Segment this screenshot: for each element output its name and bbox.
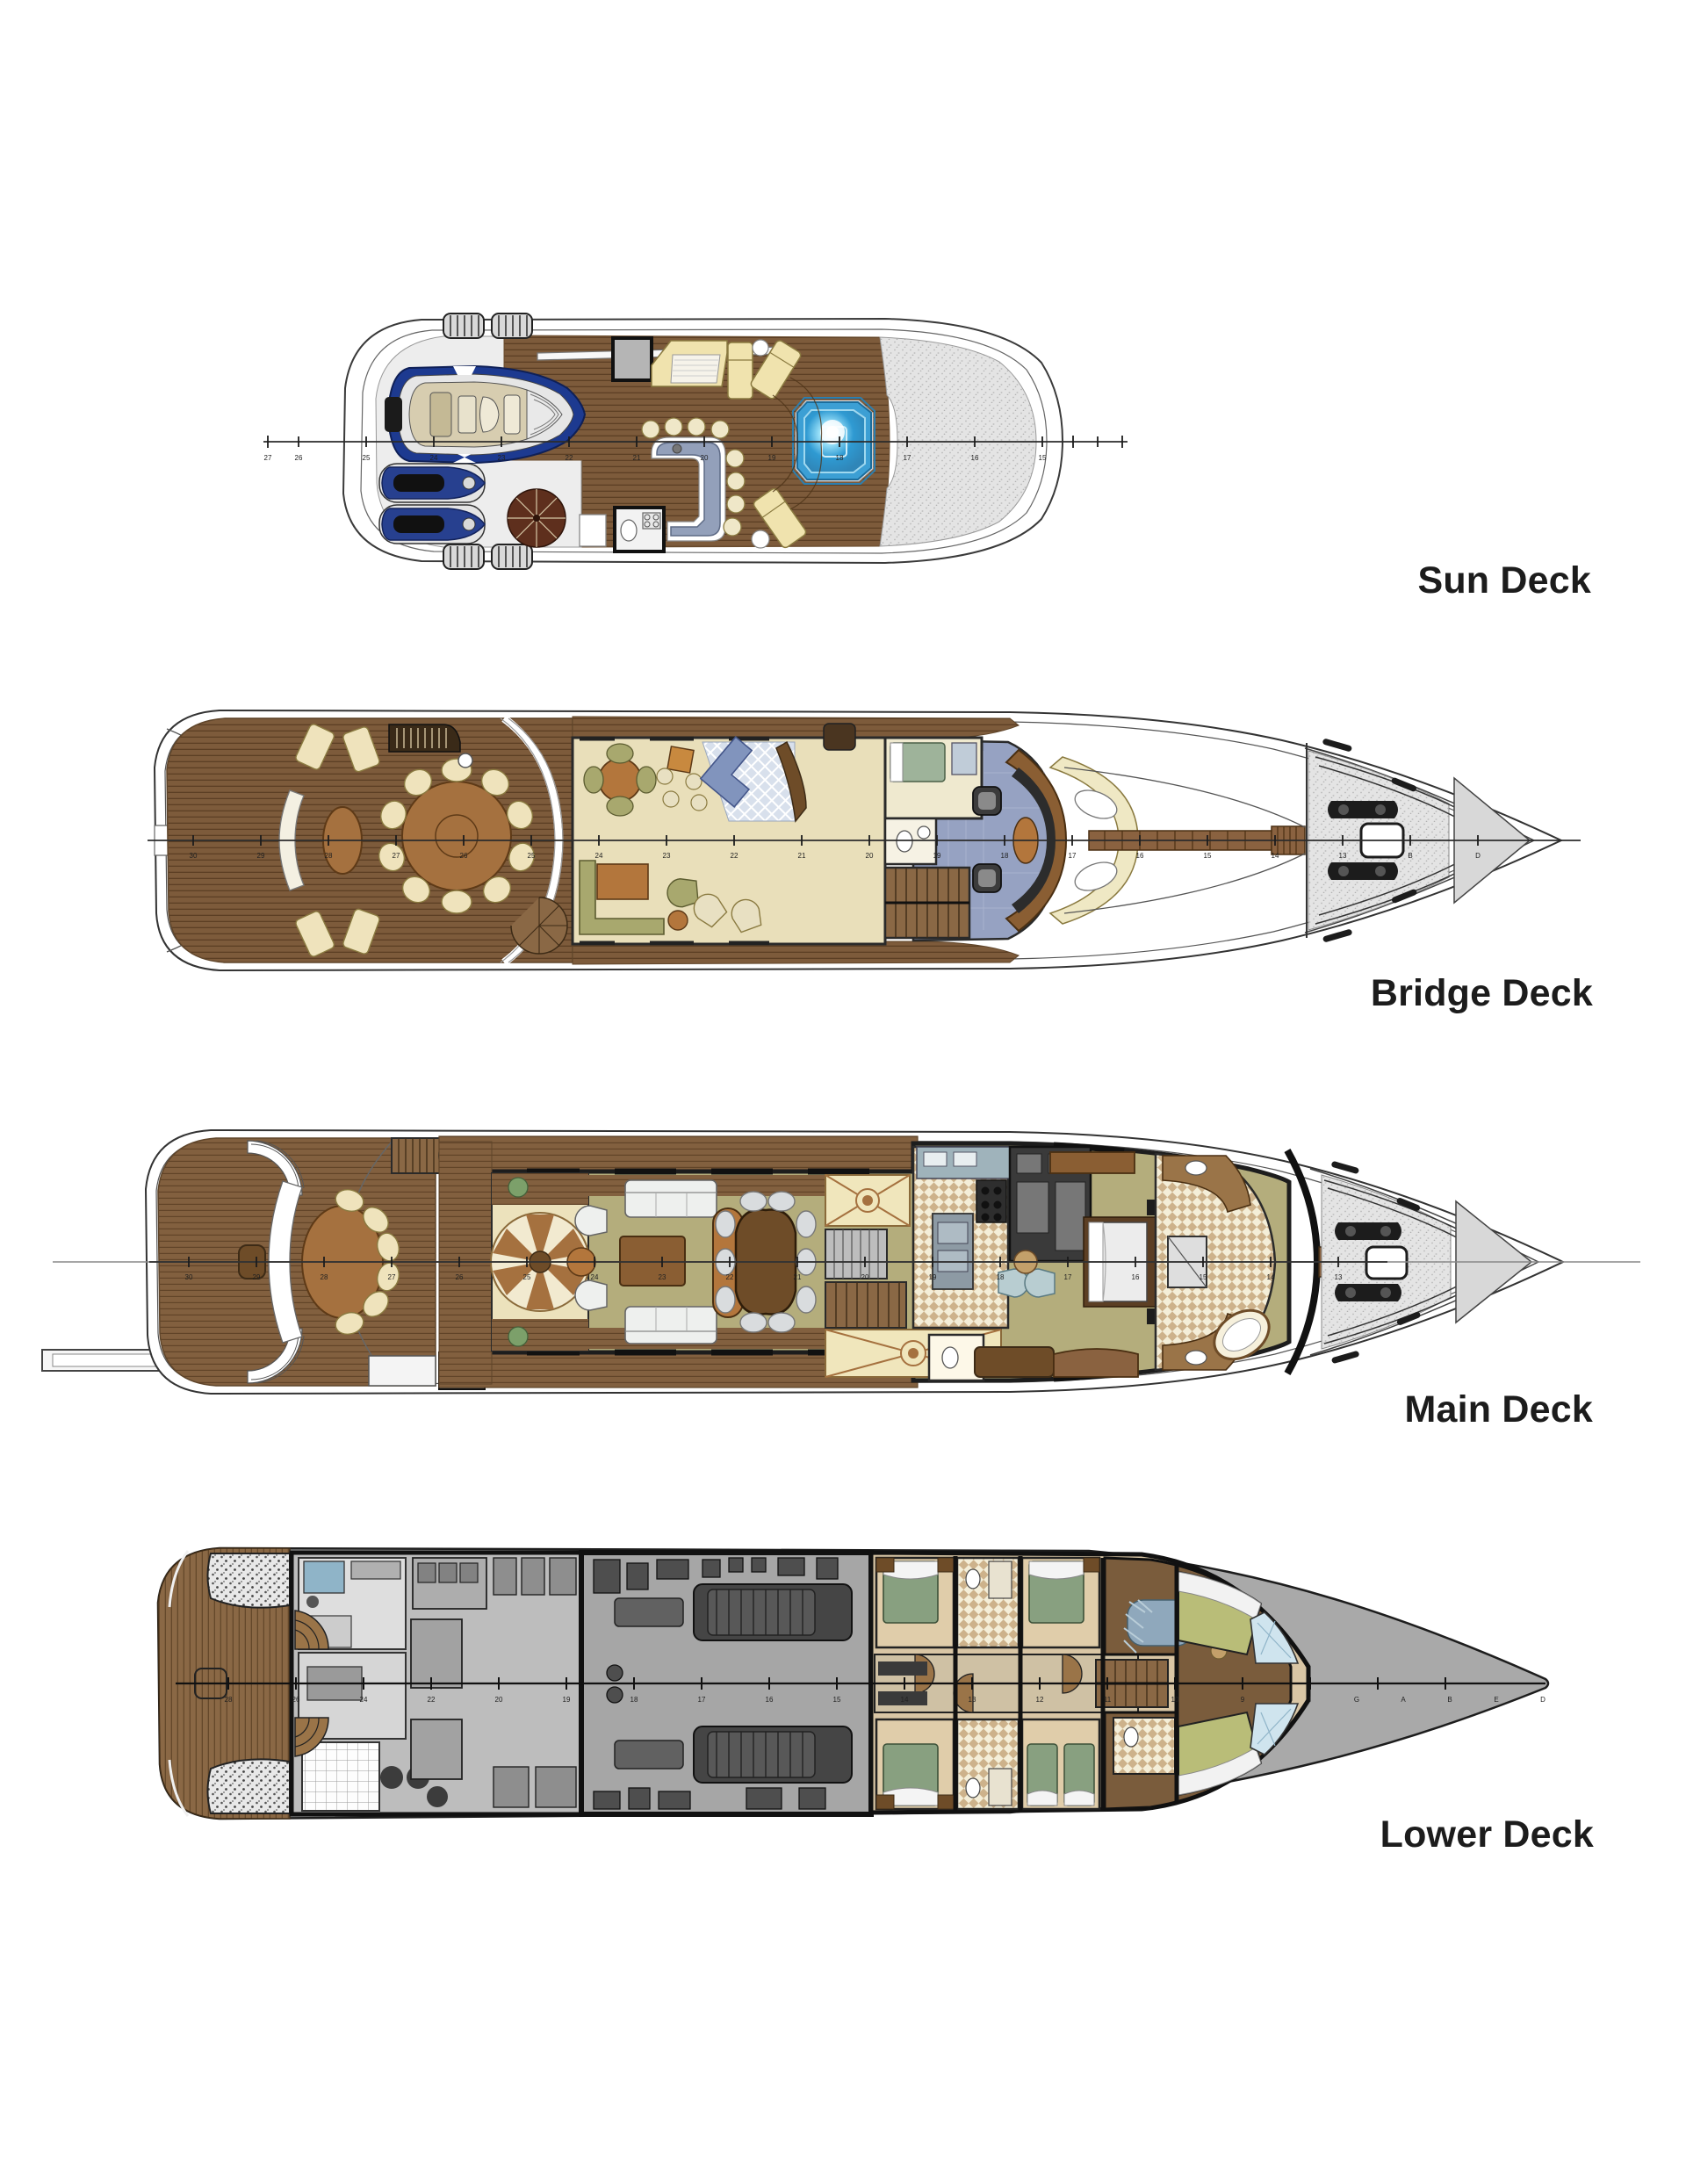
svg-text:28: 28 [321,1273,328,1281]
svg-text:16: 16 [766,1696,774,1704]
svg-text:23: 23 [498,454,506,462]
svg-text:26: 26 [295,454,303,462]
svg-text:23: 23 [659,1273,666,1281]
svg-text:20: 20 [495,1696,503,1704]
svg-text:16: 16 [1132,1273,1140,1281]
svg-text:13: 13 [1339,852,1347,860]
svg-text:24: 24 [360,1696,368,1704]
svg-text:D: D [1475,852,1481,860]
svg-text:17: 17 [698,1696,706,1704]
svg-text:21: 21 [794,1273,802,1281]
svg-text:G: G [1354,1696,1359,1704]
svg-text:23: 23 [663,852,671,860]
svg-text:26: 26 [460,852,468,860]
svg-text:15: 15 [1204,852,1212,860]
svg-text:19: 19 [768,454,776,462]
svg-text:24: 24 [591,1273,599,1281]
svg-text:D: D [1540,1696,1545,1704]
svg-text:13: 13 [969,1696,976,1704]
svg-text:21: 21 [633,454,641,462]
svg-text:15: 15 [1039,454,1047,462]
svg-text:14: 14 [1267,1273,1275,1281]
svg-text:B: B [1447,1696,1452,1704]
svg-text:24: 24 [430,454,438,462]
svg-text:27: 27 [393,852,400,860]
svg-text:A: A [1401,1696,1406,1704]
svg-text:19: 19 [563,1696,571,1704]
svg-text:16: 16 [971,454,979,462]
svg-text:19: 19 [933,852,941,860]
svg-text:I: I [1309,1696,1311,1704]
svg-text:E: E [1494,1696,1498,1704]
svg-text:22: 22 [731,852,739,860]
svg-text:28: 28 [325,852,333,860]
svg-text:22: 22 [428,1696,436,1704]
svg-text:29: 29 [257,852,265,860]
svg-text:12: 12 [1036,1696,1044,1704]
svg-text:20: 20 [701,454,709,462]
svg-text:14: 14 [901,1696,909,1704]
svg-text:22: 22 [566,454,573,462]
svg-text:30: 30 [190,852,198,860]
svg-text:B: B [1408,852,1412,860]
svg-text:13: 13 [1335,1273,1343,1281]
svg-text:27: 27 [388,1273,396,1281]
svg-text:20: 20 [861,1273,869,1281]
svg-text:20: 20 [866,852,874,860]
svg-text:26: 26 [292,1696,300,1704]
svg-text:15: 15 [833,1696,841,1704]
svg-text:25: 25 [528,852,536,860]
svg-text:29: 29 [253,1273,261,1281]
svg-text:15: 15 [1200,1273,1207,1281]
svg-text:18: 18 [836,454,844,462]
svg-text:17: 17 [1064,1273,1072,1281]
svg-text:14: 14 [1272,852,1279,860]
svg-text:27: 27 [264,454,272,462]
svg-text:25: 25 [363,454,371,462]
svg-text:26: 26 [456,1273,464,1281]
svg-text:30: 30 [185,1273,193,1281]
svg-text:18: 18 [630,1696,638,1704]
svg-text:24: 24 [595,852,603,860]
svg-text:17: 17 [904,454,911,462]
svg-text:9: 9 [1241,1696,1245,1704]
svg-text:11: 11 [1104,1696,1112,1704]
svg-text:25: 25 [523,1273,531,1281]
svg-text:28: 28 [225,1696,233,1704]
svg-text:21: 21 [798,852,806,860]
svg-text:18: 18 [997,1273,1005,1281]
svg-text:22: 22 [726,1273,734,1281]
svg-text:19: 19 [929,1273,937,1281]
svg-text:18: 18 [1001,852,1009,860]
svg-text:17: 17 [1069,852,1077,860]
svg-text:16: 16 [1136,852,1144,860]
svg-text:10: 10 [1171,1696,1179,1704]
